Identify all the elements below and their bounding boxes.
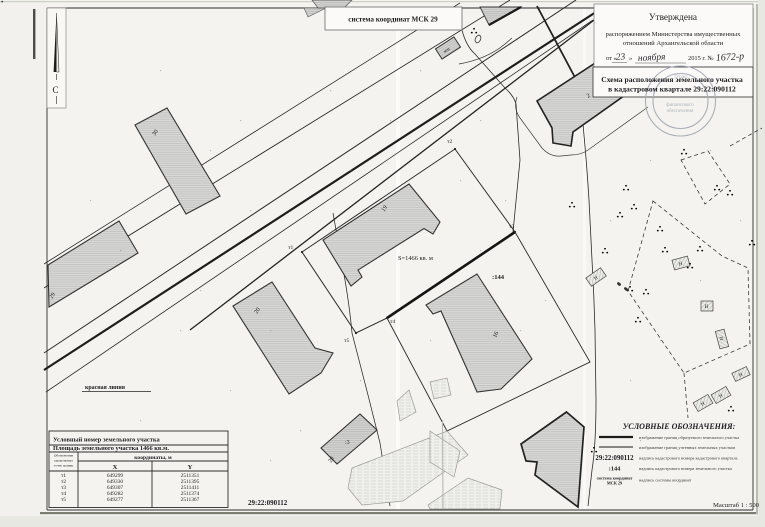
svg-text:2511367: 2511367 — [181, 497, 200, 503]
svg-text:финансового: финансового — [666, 103, 694, 108]
svg-text:ноября: ноября — [638, 52, 666, 64]
svg-text:Утверждена: Утверждена — [649, 13, 697, 23]
svg-text:отношений Архангельской област: отношений Архангельской области — [623, 40, 724, 47]
svg-text:изображение границ образуемого: изображение границ образуемого земельног… — [639, 435, 739, 440]
svg-text::144: :144 — [492, 274, 505, 281]
svg-text:надпись системы координат: надпись системы координат — [639, 478, 691, 483]
svg-text:649277: 649277 — [107, 497, 123, 503]
svg-text:23: 23 — [615, 52, 626, 63]
svg-text:надпись кадастрового номера ка: надпись кадастрового номера кадастрового… — [639, 456, 738, 461]
svg-text:т2: т2 — [447, 139, 452, 145]
svg-text:29:22:090112: 29:22:090112 — [248, 499, 288, 507]
svg-text::3: :3 — [345, 440, 350, 446]
svg-text:S=1466 кв. м: S=1466 кв. м — [398, 255, 433, 262]
svg-text:Y: Y — [188, 464, 193, 471]
svg-text:точек границ: точек границ — [54, 464, 74, 468]
svg-text:характерных: характерных — [54, 459, 73, 463]
svg-text:X: X — [113, 464, 118, 471]
svg-text:т4: т4 — [390, 319, 395, 325]
svg-text:координаты, м: координаты, м — [134, 455, 172, 461]
svg-text:красная линия: красная линия — [85, 385, 126, 391]
svg-text:Площадь земельного участка 146: Площадь земельного участка 1466 кв.м. — [53, 445, 169, 452]
svg-text:т5: т5 — [61, 497, 66, 503]
svg-text::144: :144 — [609, 466, 622, 473]
svg-text:Схема расположения земельного: Схема расположения земельного участка — [601, 75, 743, 84]
svg-text:С: С — [53, 85, 59, 95]
svg-text:Условный номер земельного учас: Условный номер земельного участка — [53, 437, 160, 444]
svg-text:т5: т5 — [344, 338, 349, 344]
svg-text:Н: Н — [705, 305, 709, 310]
svg-text:надпись кадастрового номера зе: надпись кадастрового номера земельного у… — [639, 466, 732, 471]
svg-text:Масштаб 1 : 500: Масштаб 1 : 500 — [713, 502, 760, 509]
svg-text:29:22:090112: 29:22:090112 — [595, 455, 634, 462]
svg-text:МСК 29: МСК 29 — [607, 481, 622, 486]
svg-text:1672-р: 1672-р — [715, 51, 744, 64]
svg-text:изображение границ учтенных зе: изображение границ учтенных земельных уч… — [639, 445, 735, 450]
svg-text:УСЛОВНЫЕ ОБОЗНАЧЕНИЯ:: УСЛОВНЫЕ ОБОЗНАЧЕНИЯ: — [623, 422, 736, 431]
svg-text:в кадастровом квартале 29:22:0: в кадастровом квартале 29:22:090112 — [608, 85, 736, 94]
svg-text:распоряжением Министерства иму: распоряжением Министерства имущественных — [605, 31, 741, 38]
svg-text:Обозначение: Обозначение — [54, 454, 74, 458]
svg-text:т1: т1 — [288, 245, 293, 251]
svg-text:»: » — [629, 55, 632, 62]
svg-text:2015 г. №: 2015 г. № — [688, 55, 714, 62]
svg-text:т3: т3 — [509, 224, 514, 230]
svg-text:система координат МСК 29: система координат МСК 29 — [348, 16, 438, 24]
svg-text:обеспечения: обеспечения — [667, 109, 694, 114]
